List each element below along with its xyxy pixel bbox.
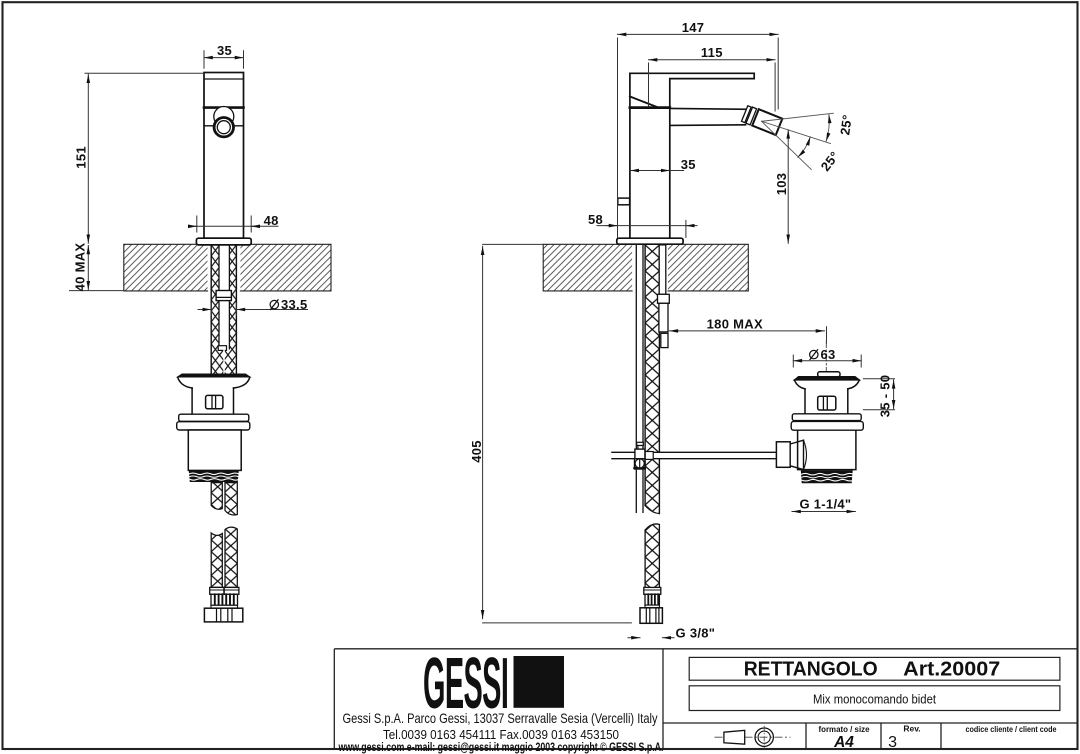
svg-text:A4: A4 [833, 734, 854, 751]
svg-text:www.gessi.com e-mail: gessi@: www.gessi.com e-mail: gessi@gessi.it mag… [338, 742, 664, 754]
svg-text:codice cliente / client code: codice cliente / client code [966, 724, 1057, 734]
svg-text:35: 35 [217, 43, 232, 58]
svg-text:151: 151 [74, 146, 89, 169]
svg-text:Tel.0039 0163 454111 Fax.00: Tel.0039 0163 454111 Fax.0039 0163 45315… [383, 727, 619, 742]
svg-text:40 MAX: 40 MAX [73, 243, 88, 292]
svg-text:180 MAX: 180 MAX [707, 316, 763, 331]
svg-text:115: 115 [701, 45, 723, 60]
svg-text:Gessi S.p.A. Parco Gessi,: Gessi S.p.A. Parco Gessi, 13037 Serraval… [343, 710, 658, 726]
svg-text:405: 405 [469, 440, 484, 463]
svg-text:G 3/8": G 3/8" [676, 625, 716, 640]
svg-text:formato / size: formato / size [819, 724, 870, 734]
svg-text:33.5: 33.5 [281, 297, 308, 312]
svg-text:63: 63 [821, 347, 836, 362]
svg-text:103: 103 [774, 173, 789, 196]
svg-text:35: 35 [681, 157, 696, 172]
svg-text:Rev.: Rev. [903, 724, 920, 734]
svg-text:35 - 50: 35 - 50 [878, 375, 893, 418]
svg-text:48: 48 [264, 213, 279, 228]
svg-text:Mix monocomando bidet: Mix monocomando bidet [813, 692, 936, 707]
svg-text:147: 147 [682, 20, 705, 35]
svg-text:25°: 25° [837, 114, 855, 136]
svg-text:3: 3 [888, 734, 897, 751]
svg-text:G 1-1/4": G 1-1/4" [799, 496, 851, 511]
svg-text:Art.20007: Art.20007 [903, 659, 1000, 681]
svg-text:RETTANGOLO: RETTANGOLO [744, 659, 878, 681]
svg-text:58: 58 [588, 212, 603, 227]
